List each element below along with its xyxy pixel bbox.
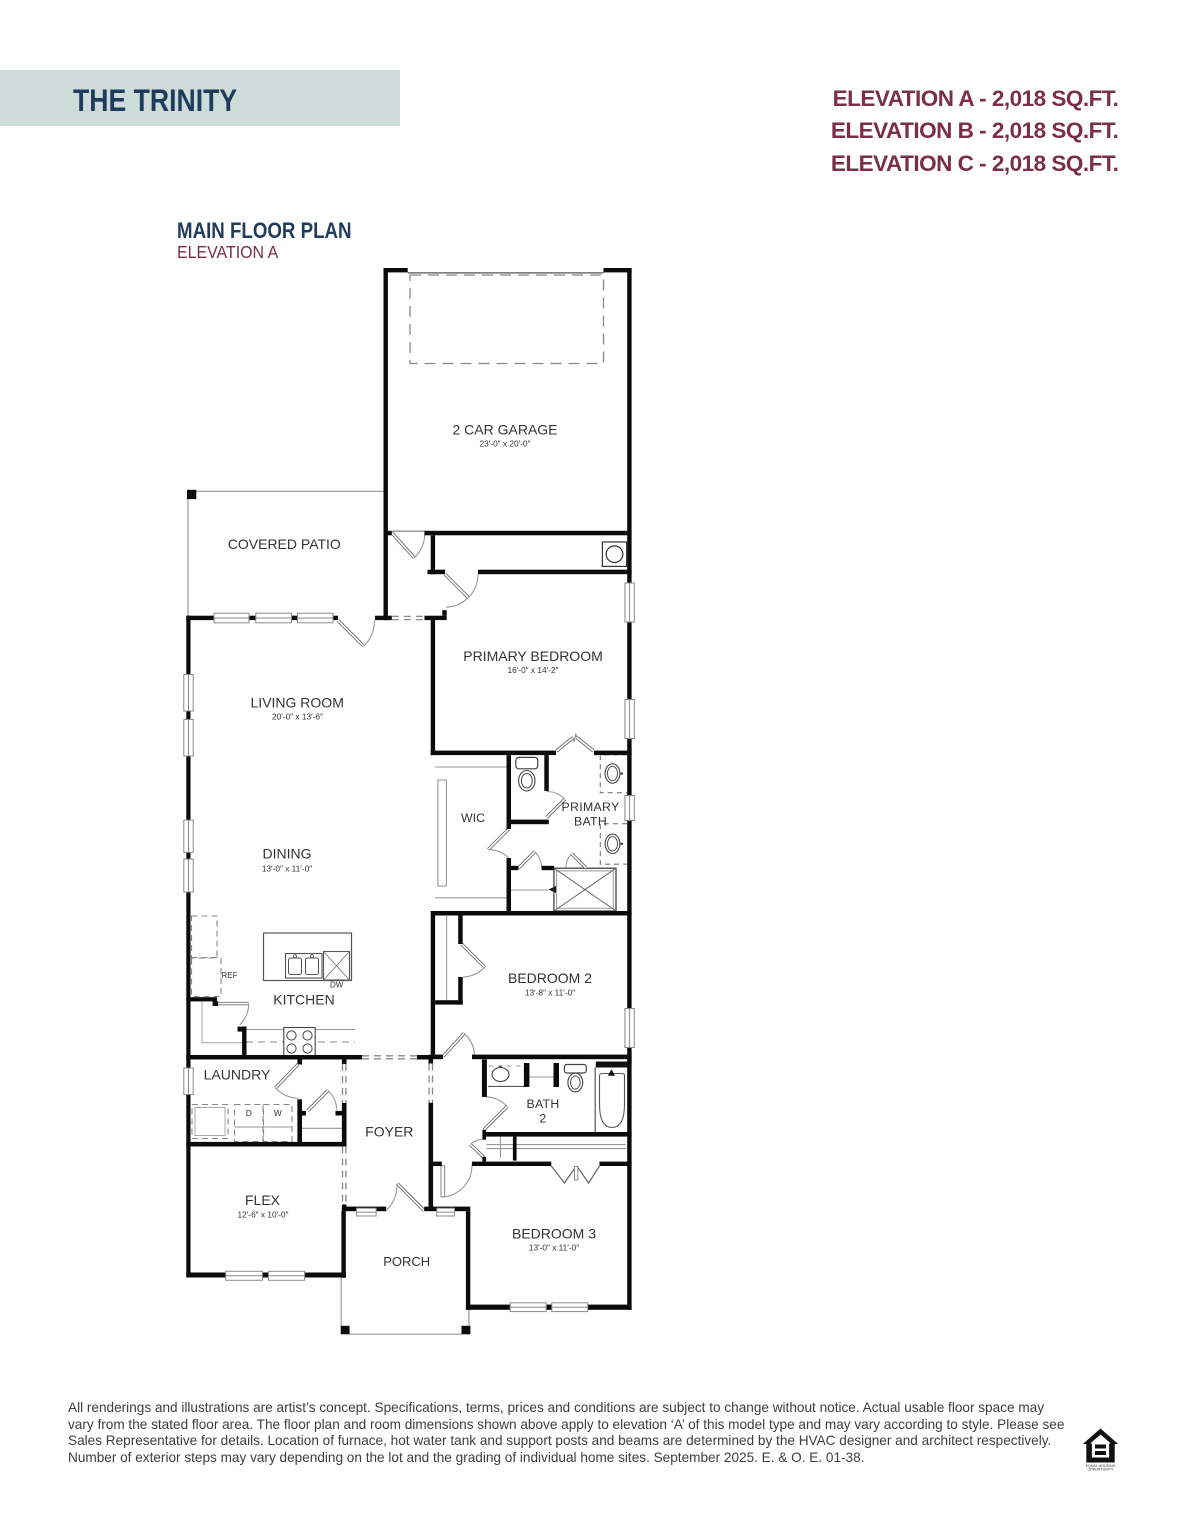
svg-text:PRIMARY BEDROOM: PRIMARY BEDROOM — [463, 648, 603, 664]
svg-text:COVERED PATIO: COVERED PATIO — [228, 536, 341, 552]
svg-text:PRIMARY: PRIMARY — [562, 800, 620, 814]
svg-text:KITCHEN: KITCHEN — [273, 991, 334, 1007]
svg-text:2: 2 — [539, 1112, 546, 1126]
svg-text:DINING: DINING — [263, 845, 312, 861]
svg-text:DW: DW — [330, 981, 344, 990]
svg-text:13′-8″ x 11′-0″: 13′-8″ x 11′-0″ — [525, 988, 575, 998]
svg-text:D: D — [246, 1108, 252, 1118]
svg-text:FLEX: FLEX — [245, 1192, 281, 1208]
svg-text:BATH: BATH — [574, 815, 607, 829]
svg-text:12′-6″ x 10′-0″: 12′-6″ x 10′-0″ — [238, 1209, 289, 1219]
svg-text:BEDROOM 2: BEDROOM 2 — [508, 970, 592, 986]
svg-text:23′-0″ x 20′-0″: 23′-0″ x 20′-0″ — [480, 439, 531, 449]
svg-text:LIVING ROOM: LIVING ROOM — [251, 695, 344, 711]
svg-text:PORCH: PORCH — [383, 1254, 430, 1269]
svg-text:16′-0″ x 14′-2″: 16′-0″ x 14′-2″ — [508, 665, 559, 675]
svg-text:13′-0″ x 11′-0″: 13′-0″ x 11′-0″ — [262, 864, 312, 874]
svg-text:BATH: BATH — [526, 1097, 559, 1111]
svg-text:REF: REF — [222, 971, 238, 980]
svg-text:OPPORTUNITY: OPPORTUNITY — [1088, 1468, 1114, 1472]
svg-text:20′-0″ x 13′-6″: 20′-0″ x 13′-6″ — [272, 712, 323, 722]
svg-text:BEDROOM 3: BEDROOM 3 — [512, 1225, 596, 1241]
svg-text:FOYER: FOYER — [365, 1123, 413, 1139]
svg-text:13′-0″ x 11′-0″: 13′-0″ x 11′-0″ — [529, 1243, 579, 1253]
svg-text:2 CAR GARAGE: 2 CAR GARAGE — [452, 422, 557, 438]
svg-text:W: W — [274, 1108, 282, 1118]
svg-text:WIC: WIC — [461, 811, 485, 825]
svg-text:LAUNDRY: LAUNDRY — [204, 1067, 271, 1083]
